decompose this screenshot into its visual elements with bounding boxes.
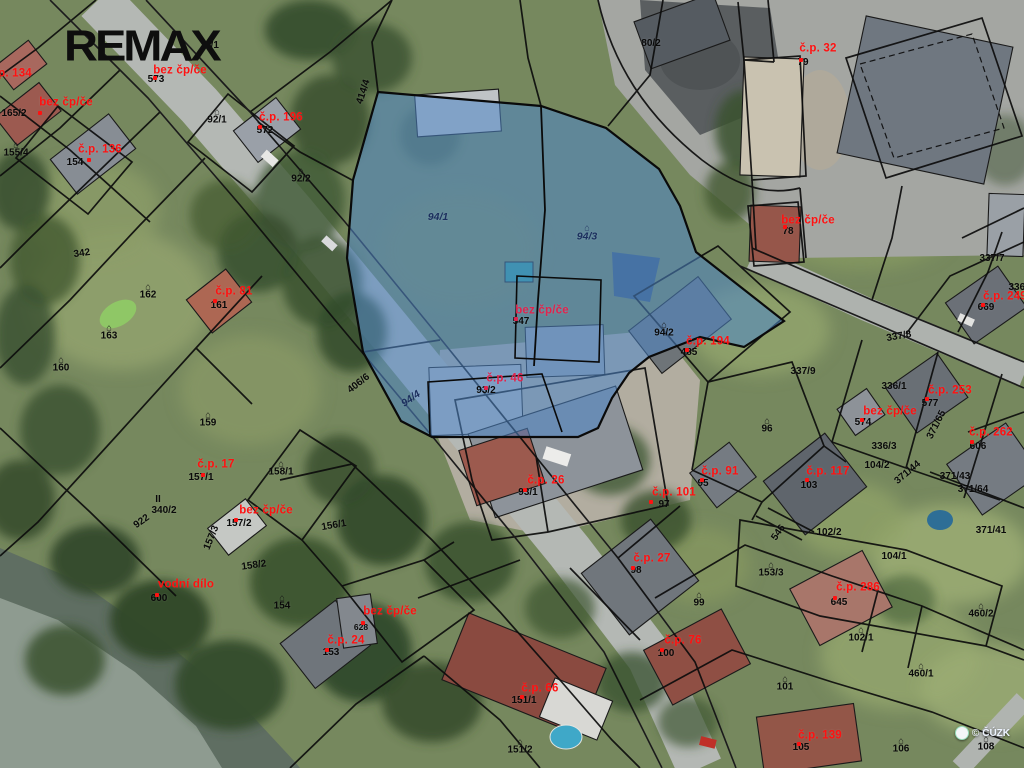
- copyright-symbol: ©: [972, 728, 979, 739]
- aerial-map-art: [0, 0, 1024, 768]
- cuzk-watermark: © ČÚZK: [955, 726, 1010, 740]
- cuzk-text: ČÚZK: [982, 728, 1010, 739]
- cuzk-logo-icon: [955, 726, 969, 740]
- small-pool: [927, 510, 953, 530]
- remax-logo: REMAX: [64, 20, 219, 71]
- map-canvas[interactable]: č.p. 134bez čp/čeč.p. 136bez čp/čeč.p. 1…: [0, 0, 1024, 768]
- swimming-pool: [550, 725, 582, 749]
